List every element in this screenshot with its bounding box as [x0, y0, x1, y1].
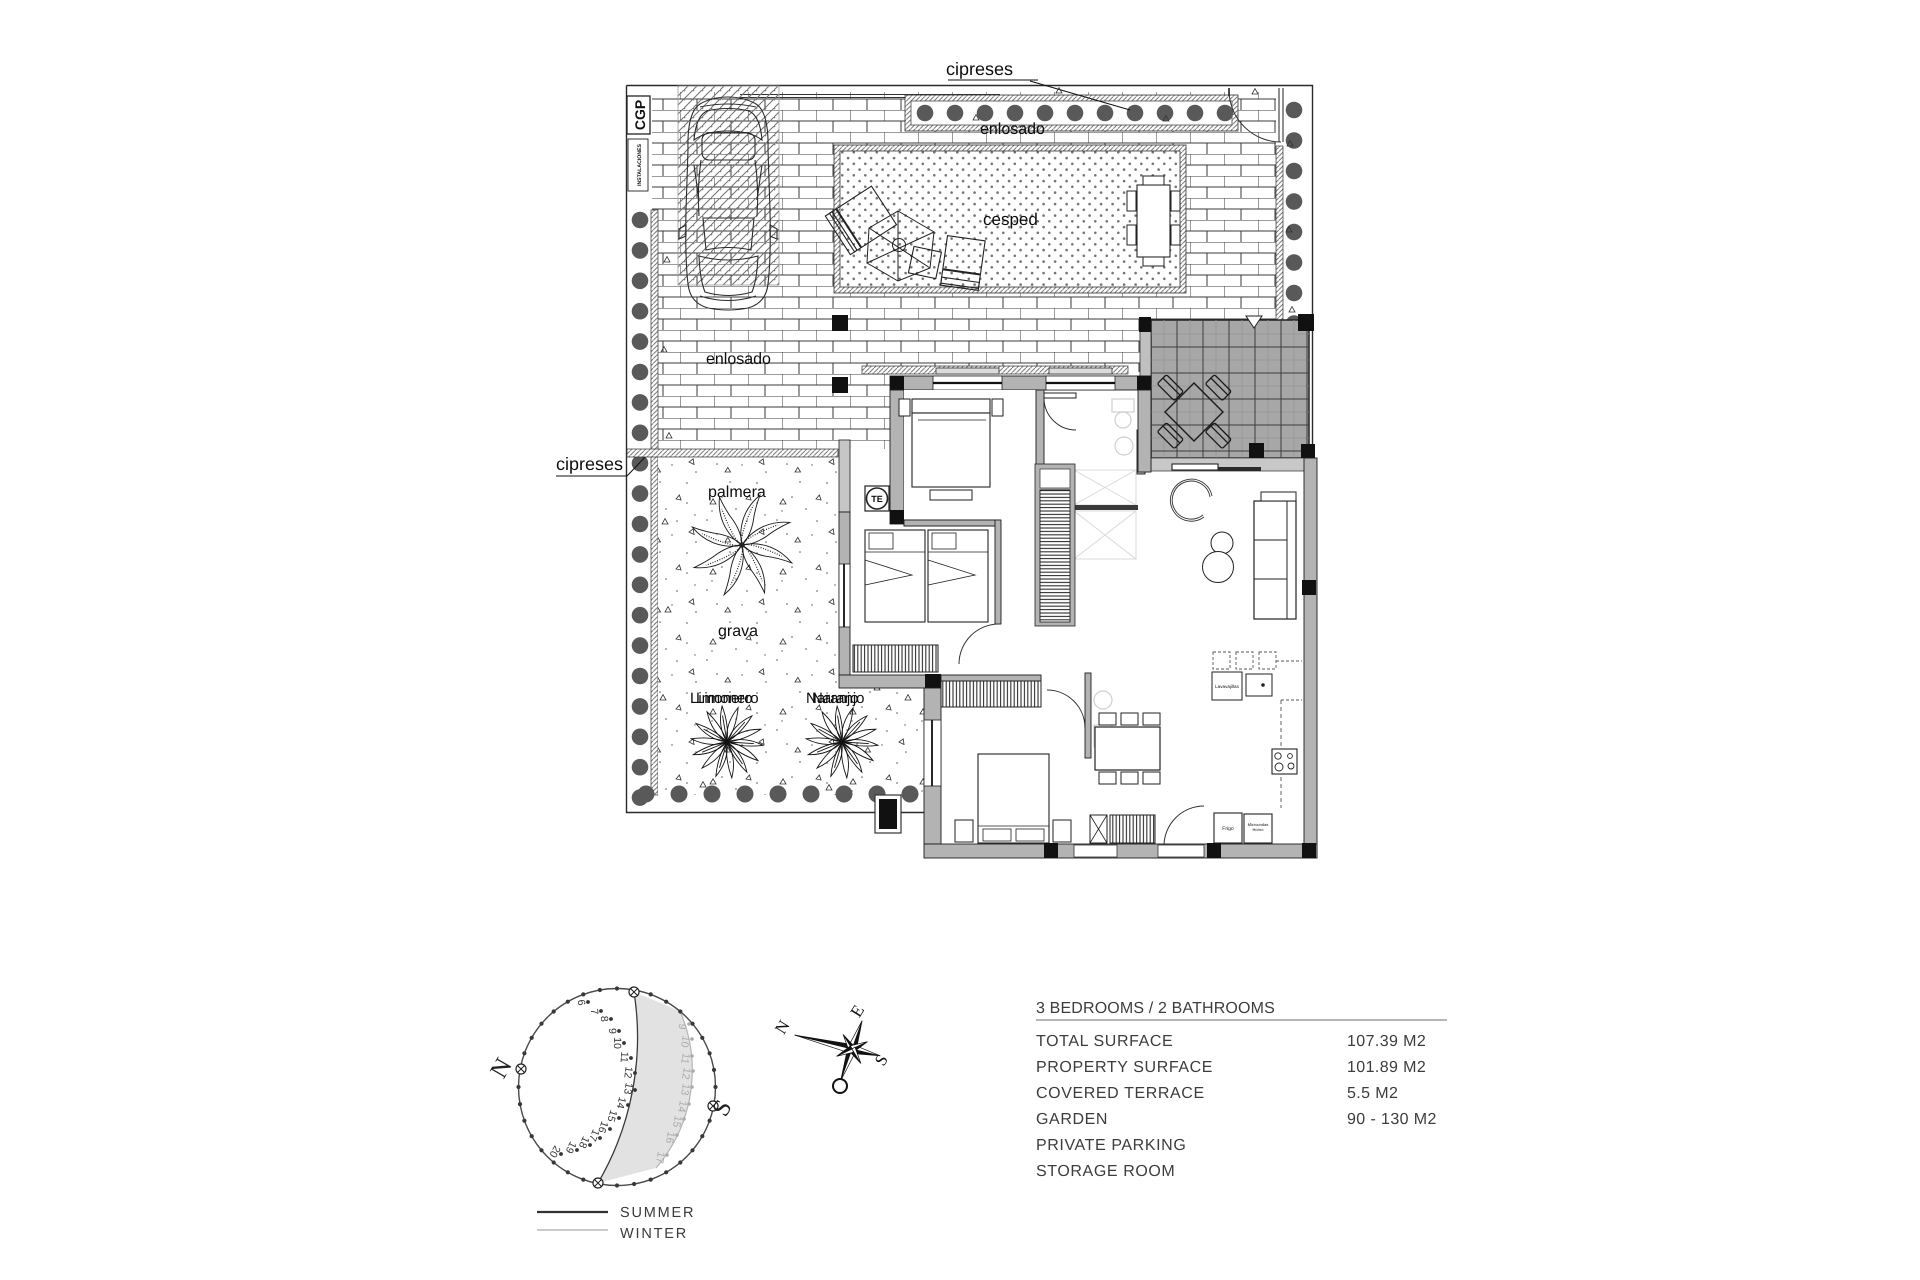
svg-text:90 - 130 M2: 90 - 130 M2 [1347, 1111, 1437, 1128]
svg-text:17: 17 [653, 1151, 667, 1165]
svg-text:12: 12 [621, 1066, 634, 1079]
svg-text:WINTER: WINTER [620, 1226, 688, 1242]
svg-text:INSTALACIONES: INSTALACIONES [637, 143, 643, 186]
svg-text:Lavavajillas: Lavavajillas [1215, 684, 1239, 689]
svg-text:grava: grava [718, 623, 758, 640]
svg-text:13: 13 [678, 1083, 692, 1097]
svg-text:16: 16 [663, 1131, 677, 1145]
svg-text:10: 10 [611, 1037, 623, 1049]
svg-text:8: 8 [598, 1015, 610, 1022]
svg-text:cesped: cesped [983, 210, 1038, 229]
svg-text:STORAGE ROOM: STORAGE ROOM [1036, 1163, 1175, 1180]
svg-text:12: 12 [679, 1067, 693, 1081]
svg-text:CGP: CGP [632, 100, 648, 130]
svg-text:3 BEDROOMS / 2 BATHROOMS: 3 BEDROOMS / 2 BATHROOMS [1036, 1000, 1275, 1017]
svg-text:107.39 M2: 107.39 M2 [1347, 1033, 1426, 1050]
svg-text:enlosado: enlosado [706, 351, 771, 368]
svg-text:13: 13 [621, 1082, 635, 1096]
svg-text:11: 11 [678, 1052, 692, 1065]
svg-text:Naranjo: Naranjo [812, 690, 865, 707]
svg-text:15: 15 [670, 1115, 684, 1129]
svg-text:PROPERTY SURFACE: PROPERTY SURFACE [1036, 1059, 1213, 1076]
svg-text:TE: TE [871, 494, 883, 504]
svg-text:SUMMER: SUMMER [620, 1205, 695, 1221]
svg-text:Frigo: Frigo [1222, 826, 1234, 832]
svg-text:10: 10 [678, 1035, 692, 1049]
svg-text:TOTAL SURFACE: TOTAL SURFACE [1036, 1033, 1173, 1050]
svg-text:PRIVATE PARKING: PRIVATE PARKING [1036, 1137, 1186, 1154]
svg-text:enlosado: enlosado [980, 121, 1045, 138]
svg-text:cipreses: cipreses [556, 454, 623, 474]
svg-text:cipreses: cipreses [946, 59, 1013, 79]
svg-text:9: 9 [606, 1028, 618, 1034]
svg-text:COVERED TERRACE: COVERED TERRACE [1036, 1085, 1205, 1102]
svg-text:GARDEN: GARDEN [1036, 1111, 1108, 1128]
svg-text:14: 14 [675, 1100, 689, 1114]
svg-text:Horno: Horno [1253, 827, 1265, 832]
svg-text:11: 11 [618, 1051, 631, 1063]
svg-text:Limonero: Limonero [696, 690, 759, 707]
svg-text:palmera: palmera [708, 484, 766, 501]
svg-text:101.89 M2: 101.89 M2 [1347, 1059, 1426, 1076]
svg-text:5.5 M2: 5.5 M2 [1347, 1085, 1398, 1102]
